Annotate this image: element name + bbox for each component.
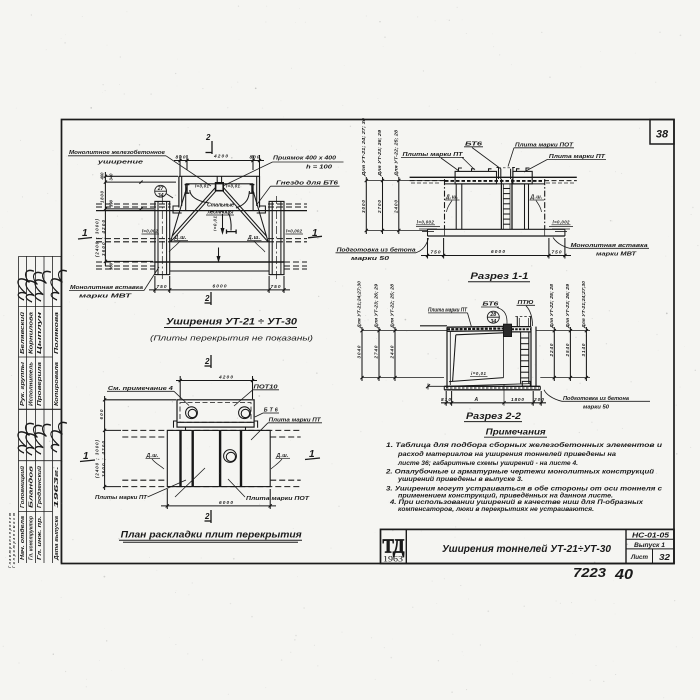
svg-text:Головницкий: Головницкий	[19, 466, 26, 508]
svg-text:Бландов: Бландов	[29, 466, 35, 508]
svg-text:Дата выпуска: Дата выпуска	[54, 516, 60, 561]
svg-text:Нач. отдела: Нач. отдела	[20, 516, 26, 560]
svg-text:Разрез 2-2: Разрез 2-2	[466, 411, 521, 421]
svg-text:6000: 6000	[219, 500, 233, 506]
svg-text:27: 27	[157, 186, 165, 192]
svg-text:200: 200	[533, 397, 544, 403]
svg-text:Для УТ-23; 26; 29: Для УТ-23; 26; 29	[374, 283, 379, 329]
svg-text:32: 32	[659, 553, 671, 562]
svg-text:40: 40	[614, 566, 634, 583]
svg-text:1. Таблица для подбора сбор: 1. Таблица для подбора сборных железобет…	[386, 442, 662, 449]
svg-text:А: А	[474, 397, 479, 403]
svg-text:34: 34	[158, 193, 164, 199]
svg-text:Гл. конструктор: Гл. конструктор	[29, 516, 35, 560]
svg-text:390: 390	[109, 199, 114, 207]
svg-text:Лист: Лист	[630, 554, 648, 561]
svg-text:l=0,01: l=0,01	[195, 184, 210, 189]
svg-text:марки 50: марки 50	[583, 404, 609, 410]
svg-text:Плита марки ПТ: Плита марки ПТ	[428, 307, 468, 313]
svg-text:1800: 1800	[100, 190, 105, 203]
svg-text:3600 ; 4200: 3600 ; 4200	[101, 219, 106, 256]
svg-text:2240: 2240	[549, 343, 554, 357]
svg-text:h = 100: h = 100	[306, 165, 333, 171]
svg-text:(Плиты перекрытия не показа: (Плиты перекрытия не показаны)	[150, 334, 314, 343]
svg-text:800: 800	[176, 155, 186, 161]
svg-text:750: 750	[271, 284, 281, 290]
svg-text:Исполнитель: Исполнитель	[29, 362, 35, 406]
svg-text:(2400 ; 3000): (2400 ; 3000)	[95, 439, 100, 478]
svg-text:4. При использовании уширени: 4. При использовании уширений в качестве…	[389, 499, 644, 506]
svg-text:компенсаторов, люки в перек: компенсаторов, люки в перекрытиях не уст…	[398, 507, 594, 513]
svg-text:6000: 6000	[491, 249, 505, 255]
svg-text:4200: 4200	[213, 154, 228, 160]
svg-text:2440: 2440	[390, 345, 395, 359]
svg-text:1963г.: 1963г.	[54, 466, 60, 508]
svg-text:2: 2	[204, 357, 210, 366]
svg-text:Рук. группы: Рук. группы	[20, 361, 26, 406]
svg-text:Для УТ-22; 25; 28: Для УТ-22; 25; 28	[393, 129, 398, 177]
svg-text:Корнилова: Корнилова	[29, 312, 35, 354]
svg-text:1: 1	[82, 228, 88, 239]
svg-text:Разрез 1-1: Разрез 1-1	[470, 271, 528, 281]
svg-text:750: 750	[157, 284, 167, 290]
svg-text:l=0,01: l=0,01	[226, 184, 241, 189]
svg-text:Подготовка из бетона: Подготовка из бетона	[563, 395, 629, 402]
svg-text:800: 800	[250, 155, 260, 161]
svg-text:Д.ш.: Д.ш.	[174, 235, 187, 241]
svg-text:2. Опалубочные и арматурные: 2. Опалубочные и арматурные чертежи моно…	[385, 468, 655, 475]
svg-text:3040: 3040	[357, 345, 362, 358]
svg-text:Белявский: Белявский	[19, 312, 26, 354]
svg-text:Гнездо для БТ6: Гнездо для БТ6	[276, 181, 339, 187]
svg-text:Выпуск 1: Выпуск 1	[634, 542, 665, 549]
svg-text:Для УТ-22; 25; 28: Для УТ-22; 25; 28	[390, 283, 395, 329]
svg-text:Плита марки ПТ: Плита марки ПТ	[549, 154, 606, 160]
svg-text:750: 750	[431, 249, 441, 255]
svg-text:марки МВТ: марки МВТ	[79, 294, 132, 300]
svg-text:Стальные: Стальные	[207, 203, 234, 209]
svg-text:l=0,002: l=0,002	[286, 229, 303, 234]
svg-text:l=0,002: l=0,002	[553, 220, 571, 225]
svg-text:Уширения тоннелей УТ-21÷УТ-3: Уширения тоннелей УТ-21÷УТ-30	[442, 544, 611, 555]
svg-text:3000: 3000	[361, 200, 366, 213]
svg-text:Для УТ-23; 26; 29: Для УТ-23; 26; 29	[377, 129, 382, 177]
svg-text:7223: 7223	[573, 566, 606, 580]
svg-text:6000: 6000	[213, 283, 227, 289]
svg-text:38: 38	[656, 129, 669, 141]
svg-text:Д.ш.: Д.ш.	[146, 453, 159, 459]
svg-text:i=0,01: i=0,01	[213, 215, 218, 231]
svg-text:3140: 3140	[581, 343, 586, 356]
svg-text:марки МВТ: марки МВТ	[596, 251, 637, 257]
svg-text:1963: 1963	[383, 555, 403, 564]
svg-text:3. Уширения могут устраивать: 3. Уширения могут устраиваться в обе сто…	[386, 485, 663, 492]
svg-text:листе 36; габаритные схемы: листе 36; габаритные схемы уширений - на…	[397, 460, 578, 467]
svg-text:Подготовка из бетона: Подготовка из бетона	[337, 246, 416, 253]
svg-text:Для УТ-23; 26; 29: Для УТ-23; 26; 29	[565, 283, 570, 329]
svg-text:Примечания: Примечания	[486, 426, 546, 436]
svg-text:2400: 2400	[393, 200, 398, 214]
svg-text:Цыплун: Цыплун	[37, 312, 43, 354]
svg-text:2700: 2700	[377, 200, 382, 214]
svg-text:Д.ш.: Д.ш.	[276, 453, 289, 459]
svg-text:Для УТ-22; 25; 28: Для УТ-22; 25; 28	[549, 283, 554, 329]
svg-text:Д.ш.: Д.ш.	[530, 195, 543, 201]
svg-text:Копировала: Копировала	[54, 362, 60, 406]
svg-text:810: 810	[441, 397, 451, 403]
svg-text:Плиты марки ПТ: Плиты марки ПТ	[95, 495, 148, 501]
svg-text:Для УТ-21; 24; 27; 30: Для УТ-21; 24; 27; 30	[361, 117, 366, 177]
svg-text:Плиты марки ПТ: Плиты марки ПТ	[403, 152, 464, 158]
svg-text:НС-01-05: НС-01-05	[632, 533, 669, 540]
svg-text:Д.ш.: Д.ш.	[445, 195, 458, 201]
svg-text:2540: 2540	[565, 343, 570, 357]
svg-text:28: 28	[489, 312, 496, 318]
svg-text:Плита марки ПОТ: Плита марки ПОТ	[246, 496, 310, 502]
svg-text:План раскладки плит перекры: План раскладки плит перекрытия	[121, 530, 303, 540]
svg-text:750: 750	[552, 249, 562, 255]
svg-text:Монолитное железобетонное: Монолитное железобетонное	[69, 149, 165, 156]
svg-text:Главтранспроект: Главтранспроект	[8, 513, 12, 568]
svg-text:Д.ш.: Д.ш.	[247, 235, 260, 241]
svg-text:900: 900	[109, 262, 114, 270]
svg-text:3600 ; 4200: 3600 ; 4200	[101, 440, 106, 477]
svg-text:l=0,002: l=0,002	[142, 229, 159, 234]
svg-text:Для УТ-21;24;27;30: Для УТ-21;24;27;30	[581, 280, 586, 329]
svg-text:уширений приведены в выпуск: уширений приведены в выпуске 3.	[397, 476, 524, 483]
svg-text:уширение: уширение	[96, 160, 143, 166]
svg-text:340: 340	[109, 173, 114, 181]
svg-text:4200: 4200	[218, 374, 233, 380]
svg-text:Гл. инж. пр.: Гл. инж. пр.	[37, 516, 43, 560]
svg-text:600: 600	[99, 409, 104, 420]
svg-text:2740: 2740	[374, 345, 379, 359]
svg-text:(2400 ; 3000): (2400 ; 3000)	[95, 218, 100, 257]
svg-text:2: 2	[205, 133, 211, 142]
svg-text:i=0,01: i=0,01	[471, 371, 487, 376]
svg-text:34: 34	[490, 319, 496, 325]
svg-text:l=0,002: l=0,002	[417, 220, 435, 225]
svg-text:400: 400	[100, 172, 105, 181]
svg-text:Проверила: Проверила	[37, 362, 43, 406]
svg-text:Полякова: Полякова	[54, 312, 60, 354]
svg-text:Для УТ-21;24;27;30: Для УТ-21;24;27;30	[357, 280, 362, 329]
svg-text:применением конструкций, прив: применением конструкций, приведённых на …	[398, 493, 613, 500]
svg-text:Приямок 400 х 400: Приямок 400 х 400	[273, 155, 337, 161]
svg-text:2: 2	[204, 294, 210, 303]
svg-text:расход материалов на уширен: расход материалов на уширения тоннелей п…	[397, 451, 617, 458]
svg-text:лестницы: лестницы	[207, 210, 234, 216]
svg-text:Уширения УТ-21 ÷ УТ-30: Уширения УТ-21 ÷ УТ-30	[166, 317, 298, 328]
svg-text:Гродзенский: Гродзенский	[36, 466, 43, 508]
svg-text:марки 50: марки 50	[351, 256, 389, 262]
svg-text:2: 2	[204, 512, 210, 521]
svg-text:1800: 1800	[511, 397, 524, 403]
